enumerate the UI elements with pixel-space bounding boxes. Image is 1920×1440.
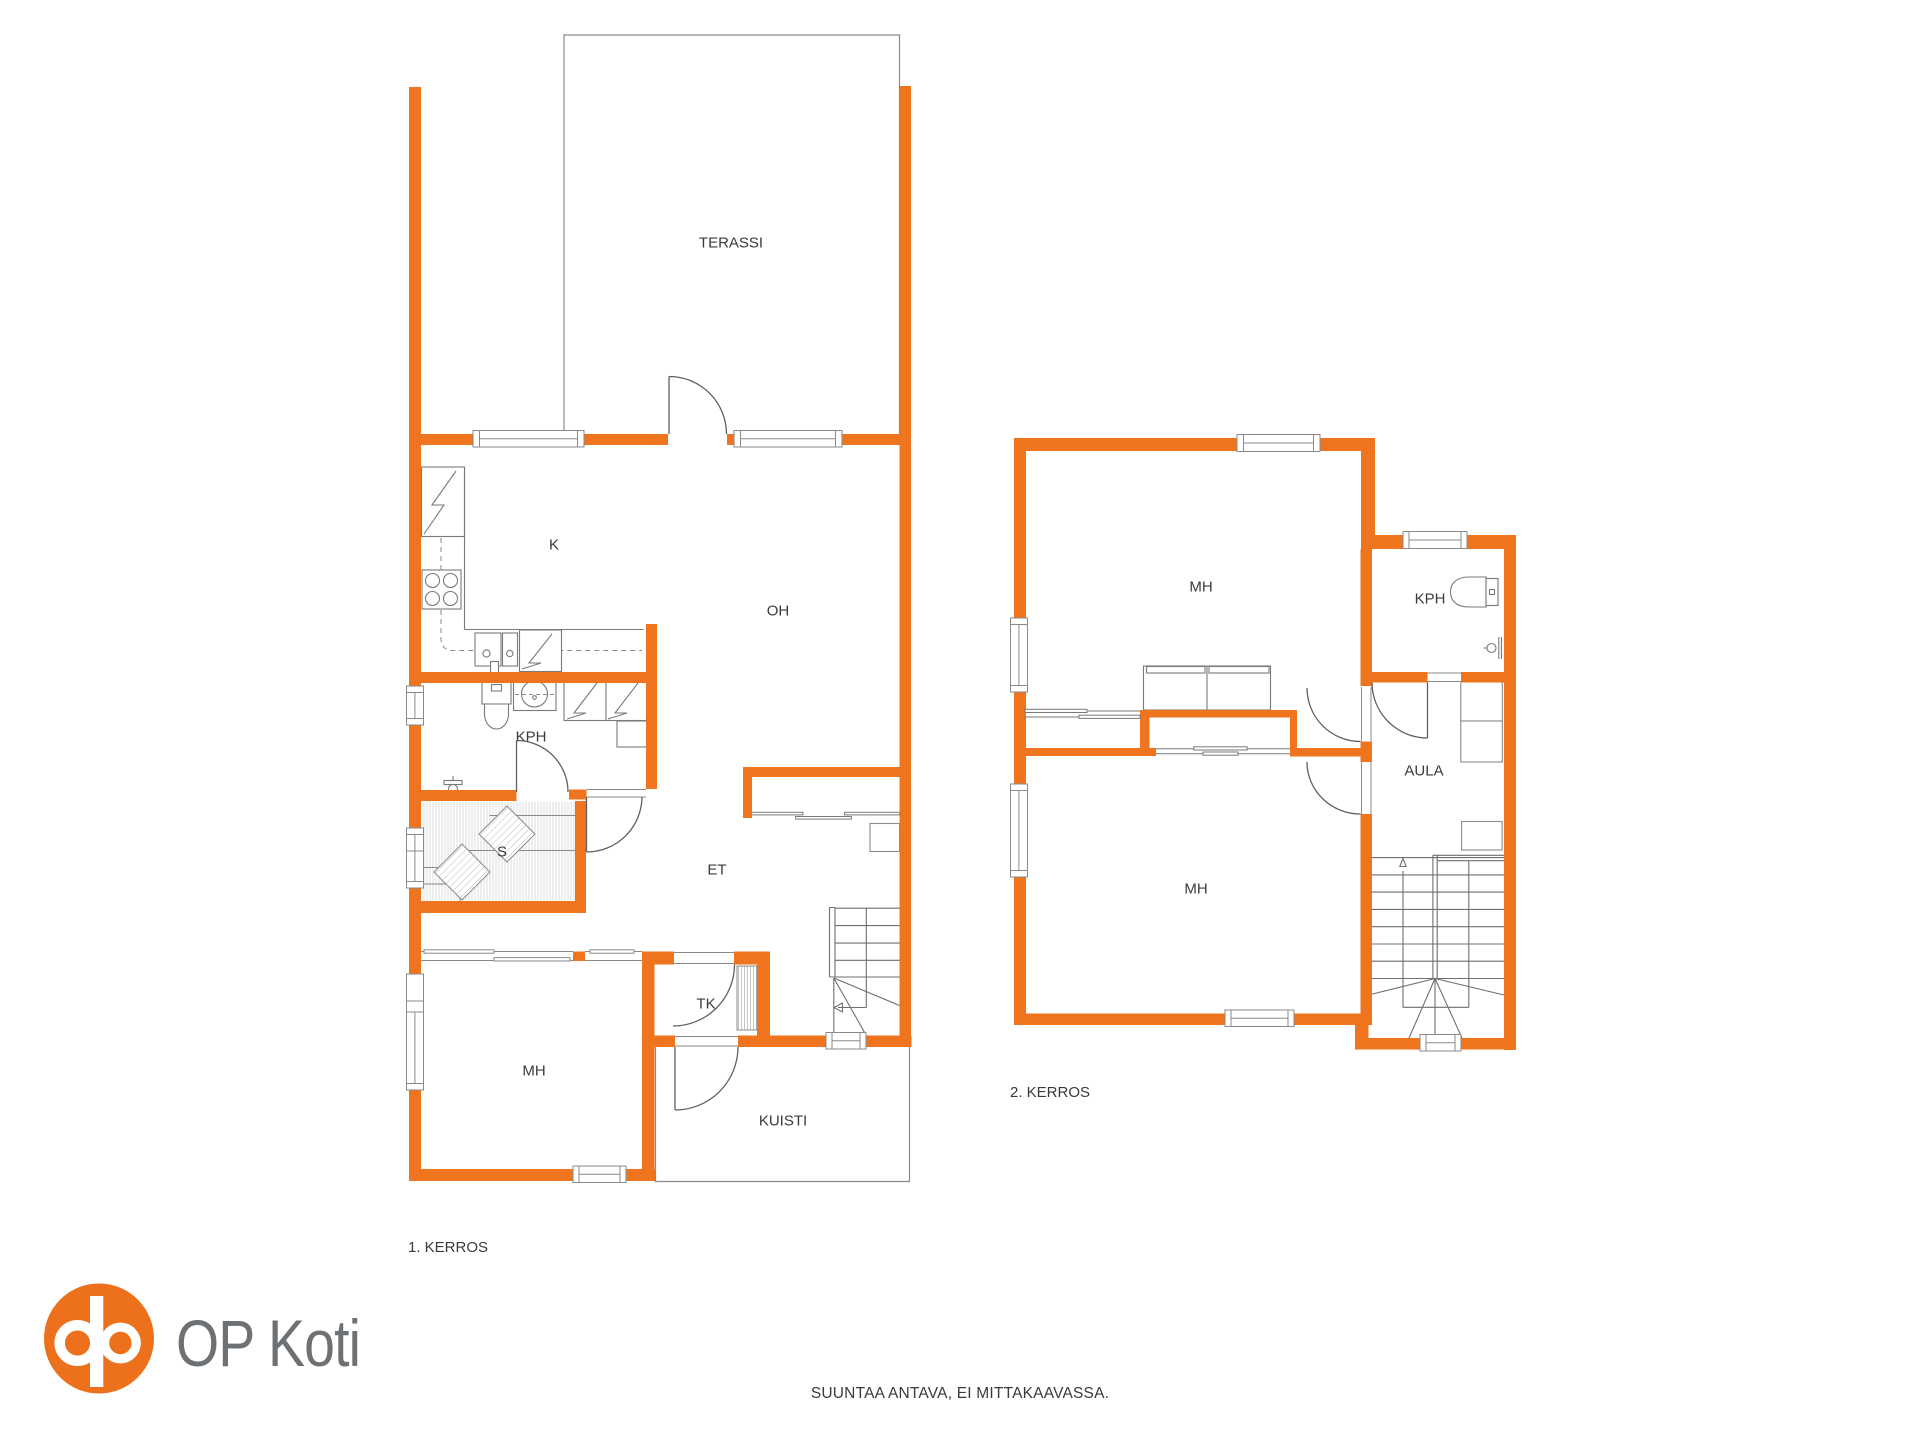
svg-text:1. KERROS: 1. KERROS: [408, 1239, 488, 1256]
svg-text:MH: MH: [1189, 579, 1212, 596]
svg-text:MH: MH: [1184, 881, 1207, 898]
svg-text:AULA: AULA: [1404, 763, 1443, 780]
svg-text:OP Koti: OP Koti: [176, 1306, 360, 1380]
svg-text:TERASSI: TERASSI: [699, 235, 763, 252]
svg-text:OH: OH: [767, 603, 790, 620]
svg-text:KUISTI: KUISTI: [759, 1113, 807, 1130]
svg-text:K: K: [549, 537, 559, 554]
svg-text:SUUNTAA ANTAVA, EI MITTAKAAVAS: SUUNTAA ANTAVA, EI MITTAKAAVASSA.: [811, 1385, 1109, 1402]
svg-text:MH: MH: [522, 1063, 545, 1080]
svg-text:KPH: KPH: [1415, 591, 1446, 608]
svg-text:2. KERROS: 2. KERROS: [1010, 1084, 1090, 1101]
svg-text:S: S: [497, 844, 507, 861]
svg-text:ET: ET: [707, 862, 726, 879]
svg-text:TK: TK: [696, 996, 715, 1013]
